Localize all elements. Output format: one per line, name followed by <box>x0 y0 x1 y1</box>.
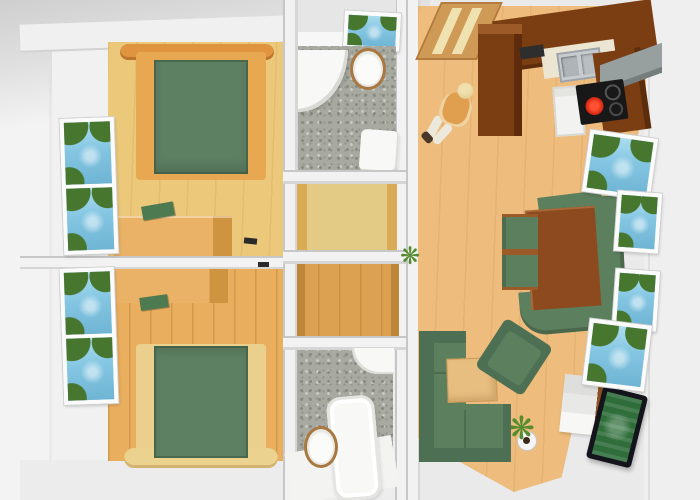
apartment-floor-plan: ❋ ❋ <box>0 0 700 500</box>
sofa-armrest-right <box>503 404 511 462</box>
bed-2-mattress <box>154 346 248 458</box>
wall-bath1-hall1 <box>283 170 411 184</box>
wall-hall1-hall2 <box>283 250 411 264</box>
burner-ring <box>608 101 624 117</box>
bedroom-divider-wall <box>20 256 288 269</box>
bedroom-1-window <box>60 117 119 255</box>
living-window-2 <box>614 191 662 254</box>
window-pane <box>66 337 114 401</box>
dresser-1 <box>114 216 232 258</box>
hallway-2-floor <box>297 264 399 336</box>
window-pane <box>616 273 656 327</box>
washbasin-1 <box>359 129 400 174</box>
window-pane <box>587 323 648 387</box>
hallway-1-floor <box>297 184 397 250</box>
cooktop <box>575 79 628 125</box>
hot-burner <box>584 96 604 116</box>
tv-screen <box>592 392 642 463</box>
dresser-1-remote <box>244 237 258 244</box>
kitchen-cabinet-tall <box>478 24 522 136</box>
window-pane <box>347 15 397 47</box>
window-pane <box>618 195 658 249</box>
dining-chair <box>502 214 538 252</box>
bedroom-2-window <box>60 267 119 405</box>
sink-basin <box>561 55 580 77</box>
dining-chair <box>502 252 538 290</box>
dresser-2 <box>112 269 228 303</box>
living-window-4 <box>582 318 652 391</box>
burner-ring <box>604 83 622 101</box>
sofa-backrest-left <box>419 331 434 462</box>
window-pane <box>64 121 112 185</box>
dresser-2-remote <box>258 262 269 267</box>
window-pane <box>64 271 112 335</box>
window-pane <box>587 134 654 196</box>
bed-1-mattress <box>154 60 248 174</box>
sofa-armrest-top <box>419 331 466 343</box>
potted-plant-small: ❋ <box>400 244 420 268</box>
toilet-1 <box>350 48 386 90</box>
sofa-cushion-seam <box>464 410 466 448</box>
window-pane <box>66 187 114 251</box>
toilet-2 <box>304 426 338 468</box>
sofa-backrest-bottom <box>419 448 511 462</box>
potted-plant-large: ❋ <box>508 412 535 444</box>
